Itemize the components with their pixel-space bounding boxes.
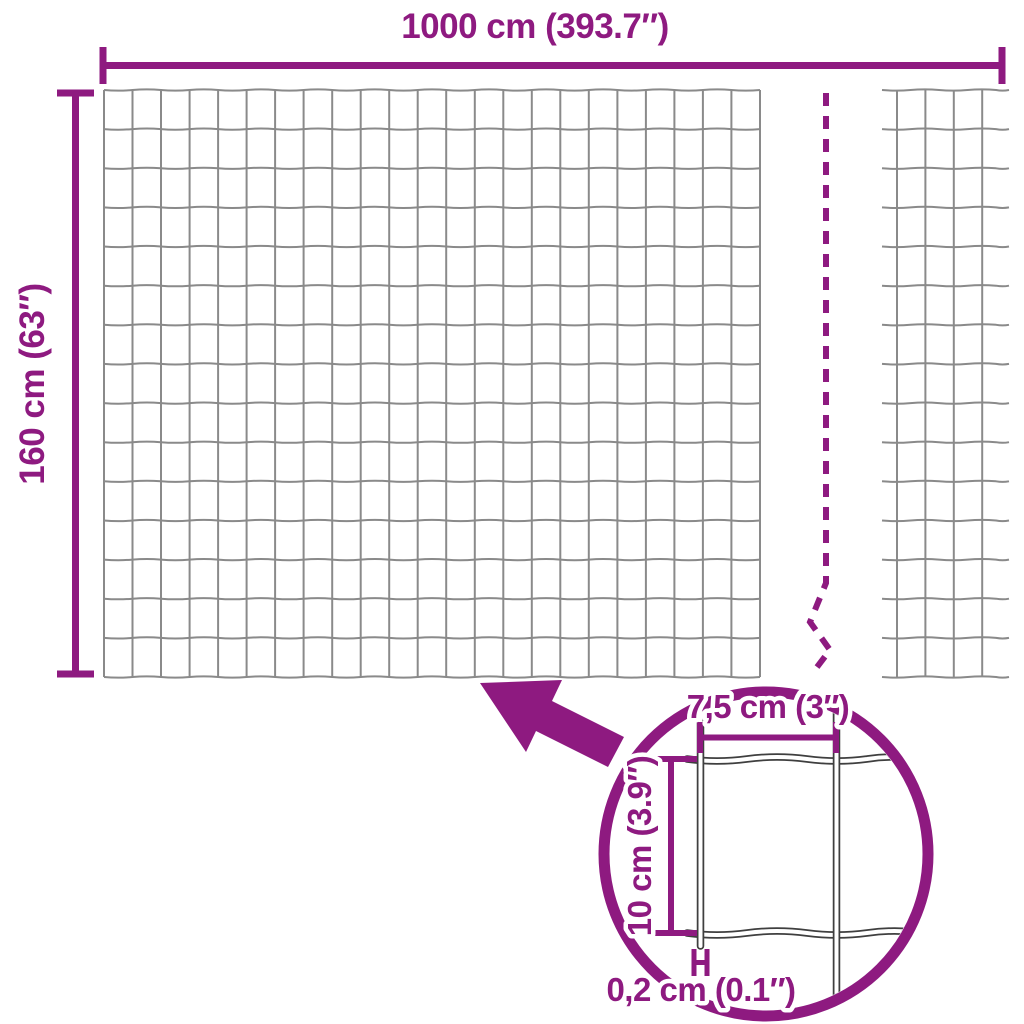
mesh-wire-horizontal — [882, 559, 1009, 560]
fence-width-label: 1000 cm (393.7″) — [401, 7, 669, 46]
mesh-wire-horizontal — [104, 481, 760, 482]
mesh-wire-horizontal — [104, 442, 760, 443]
mesh-wire-horizontal — [882, 324, 1009, 325]
mesh-wire-horizontal — [882, 442, 1009, 443]
height-dimension: 160 cm (63″) — [13, 93, 94, 674]
mesh-wire-horizontal — [882, 129, 1009, 130]
mesh-wire-horizontal — [882, 403, 1009, 404]
mesh-wire-horizontal — [882, 207, 1009, 208]
fence-dimension-diagram: 1000 cm (393.7″) 160 cm (63″) 7,5 cm (3″… — [0, 0, 1024, 1024]
mesh-wire-horizontal — [104, 246, 760, 247]
mesh-wire-horizontal — [104, 363, 760, 364]
mesh-wire-horizontal — [882, 598, 1009, 599]
detail-width-dimension-line — [700, 722, 836, 753]
fence-mesh-continued — [882, 89, 1009, 677]
mesh-wire-horizontal — [104, 168, 760, 169]
mesh-wire-horizontal — [882, 285, 1009, 286]
mesh-wire-horizontal — [882, 637, 1009, 638]
mesh-wire-horizontal — [882, 246, 1009, 247]
mesh-wire-horizontal — [104, 598, 760, 599]
zoom-arrow-icon — [480, 680, 624, 767]
mesh-wire-horizontal — [882, 481, 1009, 482]
mesh-wire-horizontal — [882, 363, 1009, 364]
mesh-wire-horizontal — [882, 168, 1009, 169]
mesh-wire-horizontal — [882, 89, 1009, 90]
detail-callout: 7,5 cm (3″) 10 cm (3.9″) 0,2 cm (0.1″) — [604, 688, 928, 1016]
width-dimension-line — [103, 47, 1002, 84]
mesh-wire-horizontal — [104, 403, 760, 404]
height-dimension-line — [57, 93, 94, 674]
detail-cell-width-label: 7,5 cm (3″) — [687, 688, 850, 725]
mesh-wire-horizontal — [104, 676, 760, 677]
mesh-wire-horizontal — [104, 637, 760, 638]
mesh-wire-horizontal — [104, 520, 760, 521]
mesh-wire-horizontal — [104, 285, 760, 286]
mesh-wire-horizontal — [104, 129, 760, 130]
width-dimension: 1000 cm (393.7″) — [103, 7, 1002, 84]
mesh-wire-horizontal — [104, 207, 760, 208]
detail-wire-thickness-label: 0,2 cm (0.1″) — [606, 971, 795, 1008]
mesh-wire-horizontal — [882, 520, 1009, 521]
mesh-wire-horizontal — [104, 89, 760, 90]
mesh-break-dashed-line — [810, 93, 830, 675]
fence-mesh — [104, 89, 760, 677]
mesh-wire-horizontal — [104, 324, 760, 325]
fence-height-label: 160 cm (63″) — [13, 283, 52, 484]
mesh-wire-horizontal — [104, 559, 760, 560]
detail-cell-height-label: 10 cm (3.9″) — [621, 756, 658, 936]
detail-height-dimension-line — [655, 759, 697, 933]
mesh-wire-horizontal — [882, 676, 1009, 677]
